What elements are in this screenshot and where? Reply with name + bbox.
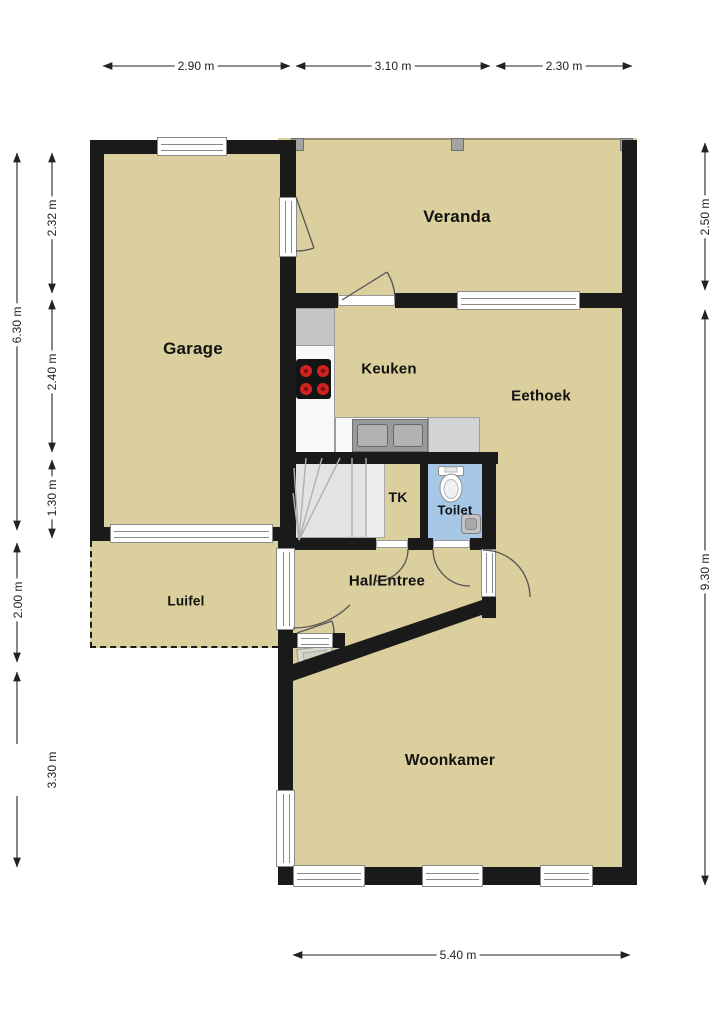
room-label-garage: Garage bbox=[163, 339, 223, 359]
hall-eethoek-door bbox=[481, 549, 496, 597]
room-label-luifel: Luifel bbox=[167, 594, 204, 609]
garage-veranda-door bbox=[279, 197, 297, 257]
stove bbox=[296, 359, 331, 399]
wall bbox=[293, 452, 498, 464]
veranda-door-threshold bbox=[338, 295, 395, 306]
dim-right-1: 2.50 m bbox=[698, 196, 712, 239]
wall bbox=[622, 140, 637, 885]
front-door bbox=[276, 548, 295, 630]
wall bbox=[420, 460, 428, 540]
wall bbox=[580, 293, 622, 308]
room-label-tk: TK bbox=[388, 489, 407, 505]
wall bbox=[365, 867, 422, 885]
toilet-tank bbox=[438, 466, 464, 476]
wall bbox=[280, 140, 296, 197]
wall bbox=[408, 538, 433, 550]
room-label-hal: Hal/Entree bbox=[349, 573, 425, 590]
tk-door-threshold bbox=[376, 540, 408, 548]
wall bbox=[90, 527, 110, 541]
dim-top-2: 3.10 m bbox=[372, 59, 415, 73]
wall bbox=[333, 633, 345, 648]
garage-back-window bbox=[110, 524, 273, 543]
woonkamer-side-window bbox=[276, 790, 295, 867]
wall bbox=[278, 630, 293, 790]
wall bbox=[482, 452, 496, 549]
floorplan: Garage Veranda Keuken Eethoek TK Toilet … bbox=[0, 0, 724, 1024]
wall bbox=[593, 867, 637, 885]
dim-top-3: 2.30 m bbox=[543, 59, 586, 73]
wall bbox=[395, 293, 457, 308]
hall-window bbox=[297, 633, 333, 648]
garage-window bbox=[157, 137, 227, 156]
dim-top-1: 2.90 m bbox=[175, 59, 218, 73]
wall bbox=[90, 140, 104, 541]
room-label-veranda: Veranda bbox=[423, 207, 491, 227]
woonkamer-window bbox=[540, 865, 593, 887]
wall bbox=[293, 538, 376, 550]
kitchen-cabinet bbox=[293, 308, 335, 346]
wall bbox=[482, 597, 496, 618]
room-label-eethoek: Eethoek bbox=[511, 388, 571, 405]
kitchen-counter-right bbox=[428, 417, 480, 453]
dim-bottom-1: 5.40 m bbox=[437, 948, 480, 962]
toilet-sink-basin bbox=[465, 518, 477, 530]
sink-basin bbox=[357, 424, 388, 447]
wall bbox=[483, 867, 540, 885]
dim-left-inner-1: 2.32 m bbox=[45, 197, 59, 240]
wall bbox=[296, 293, 338, 308]
room-label-keuken: Keuken bbox=[361, 361, 416, 378]
dim-left-2-00: 2.00 m bbox=[11, 579, 25, 622]
dim-left-3-30: 3.30 m bbox=[45, 749, 59, 792]
room-label-woonkamer: Woonkamer bbox=[405, 752, 495, 770]
sink-basin bbox=[393, 424, 423, 447]
veranda-post bbox=[451, 138, 464, 151]
wall bbox=[280, 257, 296, 541]
room-label-toilet: Toilet bbox=[438, 503, 473, 518]
dim-right-2: 9.30 m bbox=[698, 551, 712, 594]
eethoek-window bbox=[457, 291, 580, 310]
woonkamer-window bbox=[422, 865, 483, 887]
dim-left-inner-3: 1.30 m bbox=[45, 477, 59, 520]
woonkamer-window bbox=[293, 865, 365, 887]
wall bbox=[278, 867, 293, 885]
dim-left-total: 6.30 m bbox=[10, 304, 24, 347]
staircase-landing bbox=[366, 459, 384, 537]
dim-left-inner-2: 2.40 m bbox=[45, 351, 59, 394]
wall bbox=[278, 537, 293, 548]
toilet-door-threshold bbox=[433, 540, 470, 548]
